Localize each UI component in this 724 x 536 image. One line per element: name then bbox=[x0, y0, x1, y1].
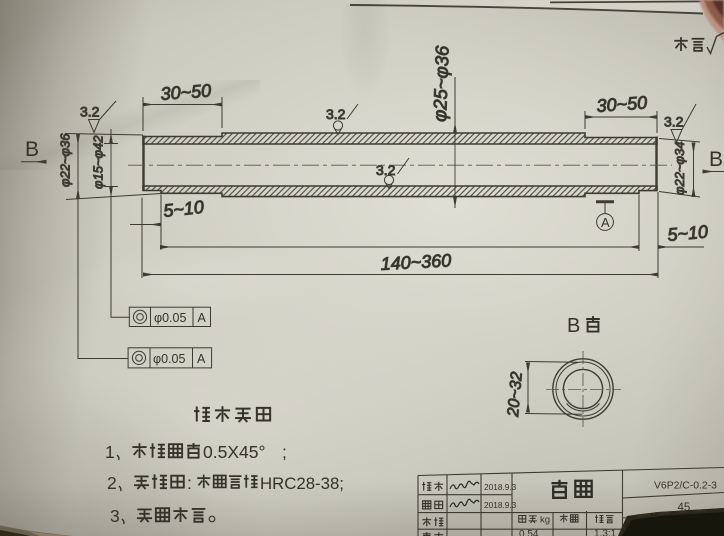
svg-text:HRC28-38;: HRC28-38; bbox=[260, 474, 344, 493]
svg-text:3.2: 3.2 bbox=[80, 104, 100, 120]
svg-text:A: A bbox=[601, 215, 610, 230]
svg-text:φ0.05: φ0.05 bbox=[154, 311, 186, 325]
svg-text:30~50: 30~50 bbox=[160, 81, 212, 104]
svg-text:φ25~φ36: φ25~φ36 bbox=[429, 45, 453, 122]
svg-text:V6P2/C-0.2-3: V6P2/C-0.2-3 bbox=[654, 481, 717, 492]
svg-text:φ22~φ34: φ22~φ34 bbox=[672, 142, 687, 195]
svg-text:1.3:1: 1.3:1 bbox=[594, 529, 617, 536]
svg-text:2018.9.3: 2018.9.3 bbox=[484, 482, 517, 492]
svg-text:20~32: 20~32 bbox=[505, 371, 526, 418]
svg-text:B: B bbox=[567, 315, 580, 337]
svg-text:φ0.05: φ0.05 bbox=[153, 352, 185, 366]
svg-text:;: ; bbox=[282, 442, 287, 462]
svg-text:2018.9.3: 2018.9.3 bbox=[484, 500, 517, 510]
svg-text:0.54: 0.54 bbox=[519, 529, 539, 536]
svg-text:5~10: 5~10 bbox=[667, 222, 709, 245]
svg-text:3: 3 bbox=[110, 506, 120, 526]
svg-text:φ15~φ42: φ15~φ42 bbox=[91, 135, 106, 189]
svg-text:kg: kg bbox=[540, 515, 550, 526]
svg-text::: : bbox=[187, 473, 192, 493]
svg-text:0.5X45°: 0.5X45° bbox=[203, 442, 265, 462]
svg-text:B: B bbox=[25, 138, 39, 161]
svg-text:5~10: 5~10 bbox=[162, 197, 204, 221]
svg-text:B: B bbox=[709, 148, 723, 171]
svg-text:30~50: 30~50 bbox=[596, 93, 648, 116]
svg-text:A: A bbox=[198, 311, 207, 325]
svg-text:3.2: 3.2 bbox=[376, 162, 396, 178]
svg-text:A: A bbox=[197, 352, 206, 366]
svg-text:φ22~φ36: φ22~φ36 bbox=[58, 133, 73, 187]
svg-text:1: 1 bbox=[105, 442, 115, 462]
svg-text:3.2: 3.2 bbox=[664, 114, 684, 130]
svg-text:2: 2 bbox=[107, 473, 117, 493]
svg-text:3.2: 3.2 bbox=[326, 106, 346, 122]
svg-text:140~360: 140~360 bbox=[380, 250, 452, 274]
